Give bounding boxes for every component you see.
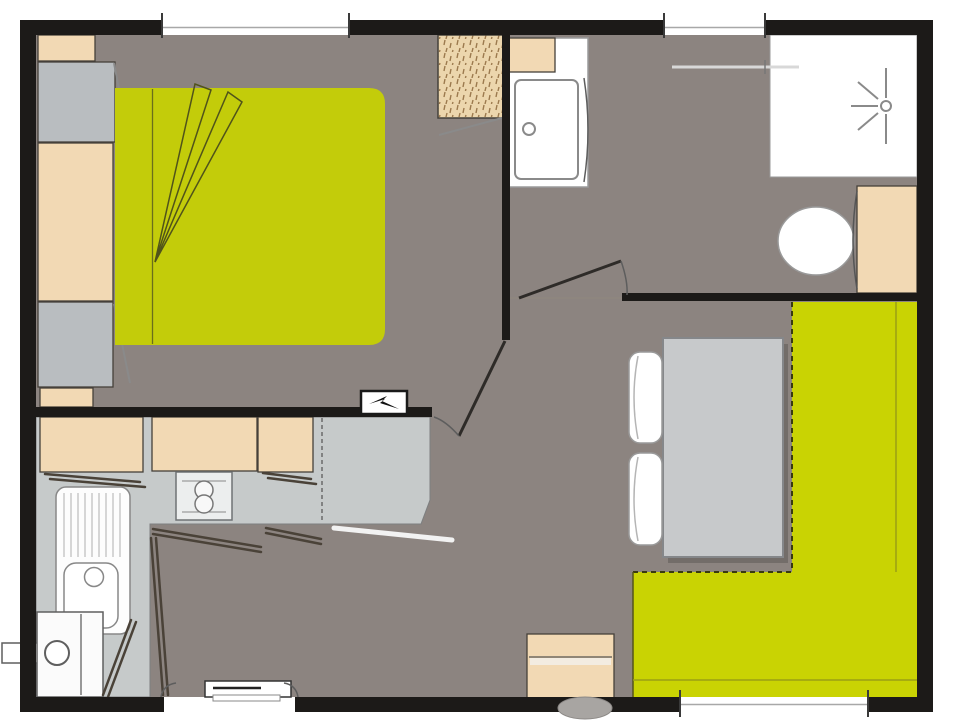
water-heater [2,612,103,697]
entrance-step [213,695,280,701]
bedroom-window [162,13,349,38]
bathroom-window [664,13,765,38]
two-burner-hob [176,472,232,520]
kitchen-wall-cabinet-right [258,417,313,472]
cistern-cabinet [857,186,917,293]
wall-bedroom-bathroom [502,35,510,340]
toilet-bowl [778,207,854,275]
wardrobe-tall [38,143,113,301]
dining-table [663,338,783,557]
basin-faucet [523,123,535,135]
double-bed [115,84,385,345]
wall-right [917,20,933,712]
wardrobe-top [38,35,95,61]
vanity-cabinet [506,38,555,72]
shower [770,35,917,177]
wall-bathroom-living [622,293,917,301]
kitchen-wall-cabinet-mid [152,417,257,471]
electrical-panel [361,391,407,414]
wall-left [20,20,36,712]
drawer-unit [527,634,614,698]
shower-tray [770,35,917,177]
wall-top [20,20,933,35]
stool [558,697,612,719]
kitchen-wall-cabinet-left [40,417,143,472]
wardrobe-cabinet-lower [38,302,113,387]
wardrobe-strip [40,388,93,407]
sink-faucet [85,568,104,587]
floorplan-svg [0,0,960,720]
wardrobe-cabinet-upper [38,62,115,142]
washbasin [515,78,588,182]
floorplan-page [0,0,960,720]
